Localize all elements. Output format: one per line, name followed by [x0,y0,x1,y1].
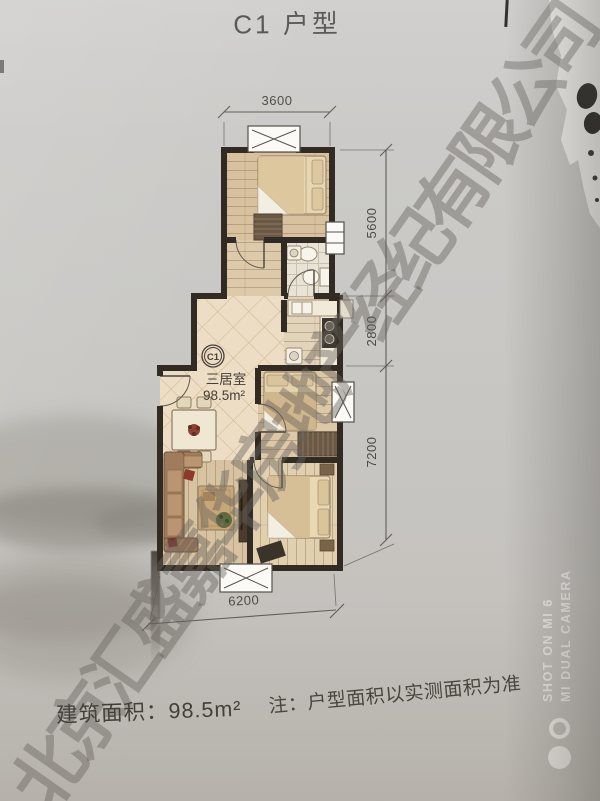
window-right [332,382,354,422]
window-bath-right [326,222,344,254]
layout-type-label: 三居室 [206,371,247,387]
area-label: 98.5m² [203,388,246,403]
camera-dot-icon [548,746,571,769]
page-edge-torn [549,0,600,228]
dim-top-label: 3600 [262,93,293,108]
camera-ring-icon [549,718,570,739]
dimension-right [340,144,394,566]
camera-watermark-line2: MI DUAL CAMERA [559,569,573,702]
window-bottom [220,564,272,592]
camera-watermark-line1: SHOT ON MI 6 [541,598,555,702]
dim-right-upper-label: 5600 [364,208,379,239]
unit-code-label: C1 [207,352,220,363]
floorplan-photo: C1 户型 [0,0,600,801]
built-area-note: 建筑面积：98.5m² [56,692,242,729]
dim-bottom-label: 6200 [228,592,260,609]
dim-right-lower-label: 7200 [364,437,379,468]
kitchen-flue [340,300,353,318]
dim-right-middle-label: 2800 [364,316,379,347]
window-top [248,126,300,152]
